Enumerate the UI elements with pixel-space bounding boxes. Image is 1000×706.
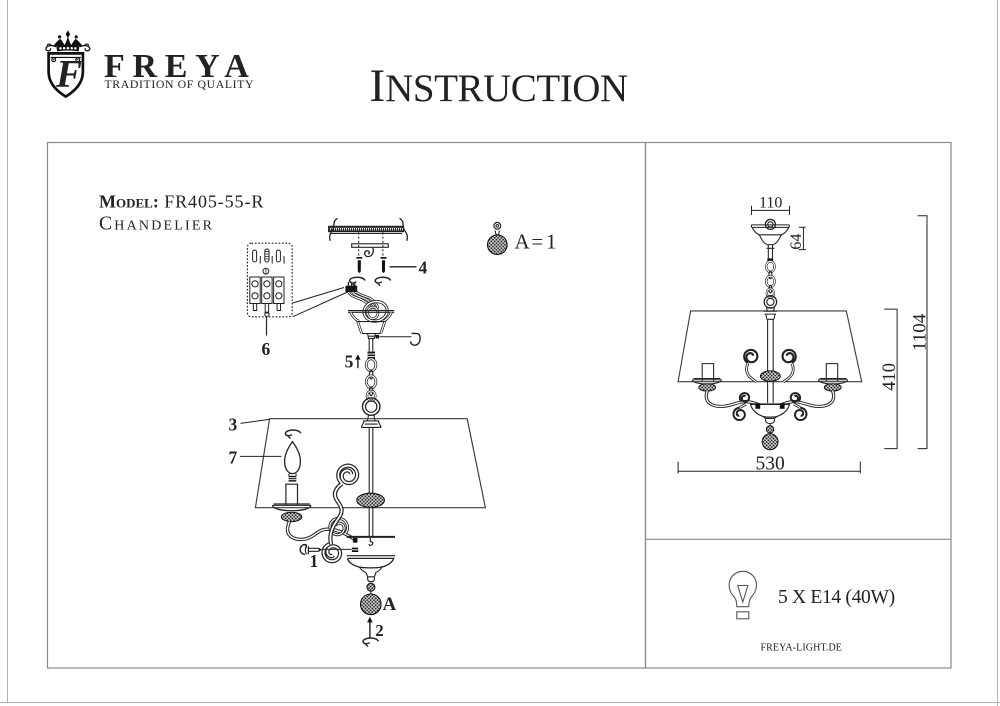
- svg-text:3: 3: [229, 414, 238, 434]
- svg-text:F: F: [55, 53, 82, 96]
- svg-text:4: 4: [419, 258, 428, 278]
- svg-text:7: 7: [229, 447, 238, 467]
- svg-text:110: 110: [759, 194, 782, 211]
- svg-text:1: 1: [310, 551, 319, 571]
- svg-text:INSTRUCTION: INSTRUCTION: [370, 60, 628, 112]
- svg-text:64: 64: [788, 234, 805, 250]
- svg-text:530: 530: [756, 453, 785, 474]
- svg-text:A = 1: A = 1: [515, 230, 557, 254]
- svg-text:TRADITION OF QUALITY: TRADITION OF QUALITY: [105, 77, 255, 91]
- svg-text:5: 5: [345, 352, 354, 372]
- svg-text:5 X E14 (40W): 5 X E14 (40W): [778, 587, 895, 608]
- svg-text:2: 2: [375, 621, 383, 640]
- svg-text:Chandelier: Chandelier: [99, 214, 214, 235]
- svg-text:A: A: [383, 594, 397, 615]
- svg-text:1104: 1104: [909, 313, 930, 351]
- svg-text:Model: FR405-55-R: Model: FR405-55-R: [99, 192, 264, 212]
- svg-text:6: 6: [262, 339, 271, 359]
- svg-text:410: 410: [880, 363, 900, 391]
- svg-text:FREYA-LIGHT.DE: FREYA-LIGHT.DE: [761, 643, 842, 654]
